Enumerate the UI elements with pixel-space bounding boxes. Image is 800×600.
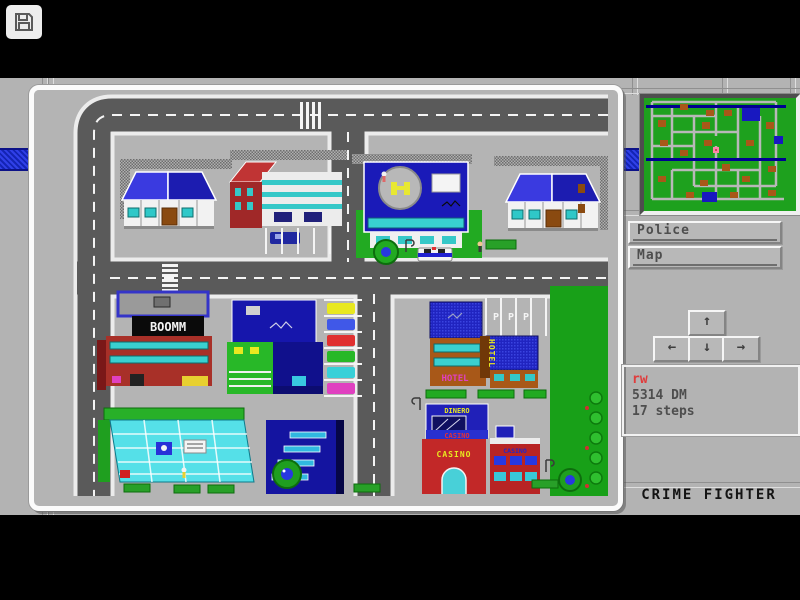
- police-button-label: Police: [633, 223, 777, 241]
- minimap-image: [644, 98, 788, 203]
- move-down-button[interactable]: ↓: [688, 336, 726, 362]
- map-button-label: Map: [633, 248, 777, 266]
- game-title: CRIME FIGHTER: [618, 487, 800, 503]
- status-panel: rw 5314 DM 17 steps: [622, 365, 800, 436]
- arrow-right-icon: →: [737, 339, 745, 355]
- bench: [354, 484, 380, 492]
- parked-car: [270, 232, 300, 244]
- hotel-vertical-sign: HOTEL: [487, 339, 496, 368]
- parking-sign: P: [493, 312, 499, 323]
- bench: [124, 484, 150, 492]
- pedestrian: [182, 468, 187, 473]
- glass-mall: [98, 408, 254, 493]
- arrow-up-icon: ↑: [703, 313, 711, 329]
- car: [327, 319, 355, 330]
- bench: [532, 480, 558, 488]
- arrow-left-icon: ←: [668, 339, 676, 355]
- police-button[interactable]: Police: [628, 221, 782, 244]
- move-right-button[interactable]: →: [722, 336, 760, 362]
- bench: [486, 240, 516, 249]
- move-left-button[interactable]: ←: [653, 336, 691, 362]
- save-icon: [13, 11, 35, 33]
- pedestrian: [382, 172, 387, 177]
- pedestrian: [478, 242, 483, 247]
- house-northeast: [506, 174, 600, 231]
- car: [327, 383, 355, 394]
- money-value: 5314 DM: [632, 388, 790, 404]
- car: [327, 367, 355, 378]
- screen: ›: [0, 0, 800, 600]
- arrow-down-icon: ↓: [703, 339, 711, 355]
- office-tower: [227, 300, 323, 394]
- bench: [174, 485, 200, 493]
- casino-band-sign: CASINO: [444, 432, 469, 440]
- save-button[interactable]: [6, 5, 42, 39]
- hotel-building: P P P HOTEL HOTEL: [426, 298, 546, 398]
- boomm-sign-text: BOOMM: [150, 320, 186, 334]
- casino-side-sign: CASINO: [503, 447, 527, 455]
- police-station: [356, 162, 482, 264]
- city-viewport[interactable]: BOOMM: [29, 85, 623, 511]
- casino-marquee-sign: DINERO: [444, 407, 469, 415]
- parking-sign: P: [508, 312, 514, 323]
- minimap-player-marker: [713, 147, 719, 153]
- game-screen: BOOMM: [0, 78, 800, 515]
- car: [327, 351, 355, 362]
- hotel-wall-sign: HOTEL: [441, 374, 469, 384]
- fountain: [273, 460, 301, 488]
- car: [327, 303, 355, 314]
- player-name: rw: [632, 372, 790, 388]
- parking-sign: P: [523, 312, 529, 323]
- steps-value: 17 steps: [632, 404, 790, 420]
- trash-can: [578, 184, 585, 193]
- trash-can: [578, 204, 585, 213]
- bench: [208, 485, 234, 493]
- car: [327, 335, 355, 346]
- map-button[interactable]: Map: [628, 246, 782, 269]
- casino-front-sign: CASINO: [437, 450, 472, 459]
- minimap[interactable]: [640, 94, 800, 215]
- city-scene: BOOMM: [34, 90, 608, 496]
- move-up-button[interactable]: ↑: [688, 310, 726, 336]
- house-northwest: [122, 172, 216, 229]
- police-car: [418, 247, 452, 261]
- fountain: [559, 469, 581, 491]
- city-park: [550, 286, 608, 496]
